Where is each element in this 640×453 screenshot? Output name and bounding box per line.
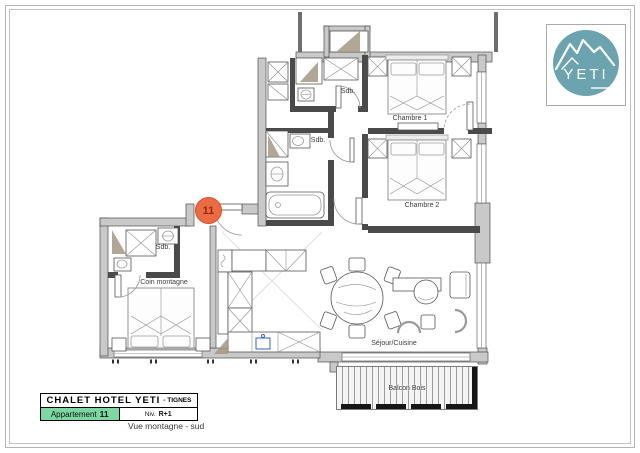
balcony-edge-segment xyxy=(341,404,371,409)
level-cell: Niv. R+1 xyxy=(120,408,198,420)
logo-tagline xyxy=(591,87,611,89)
apartment-entry-number: 11 xyxy=(203,205,215,217)
apartment-cell: Appartement 11 xyxy=(41,408,120,420)
room-label-balcon: Balcon Bois xyxy=(337,385,477,393)
apartment-entry-marker: 11 xyxy=(195,197,222,224)
view-caption: Vue montagne - sud xyxy=(128,421,204,431)
yeti-logo: YETI xyxy=(546,24,626,106)
apartment-number: 11 xyxy=(100,409,109,419)
floorplan-page: Balcon Bois Chambre 1 Chambre 2 Sdb. Sdb… xyxy=(0,0,640,453)
sill-ticks xyxy=(112,360,299,364)
bed-coin-montagne xyxy=(112,288,210,351)
level-value: R+1 xyxy=(159,411,172,418)
room-label-sejour-cuisine: Séjour/Cuisine xyxy=(356,340,432,348)
logo-text: YETI xyxy=(547,66,625,83)
room-label-sdb-left: Sdb. xyxy=(150,244,176,252)
balcony-edge-segment xyxy=(376,404,406,409)
hotel-location: - TIGNES xyxy=(163,397,191,404)
hotel-name: CHALET HOTEL YETI xyxy=(47,395,161,406)
level-word: Niv. xyxy=(145,411,156,418)
balcony-edge-segment xyxy=(411,404,441,409)
balcony: Balcon Bois xyxy=(336,366,478,410)
room-label-chambre-1: Chambre 1 xyxy=(384,115,436,123)
living-furniture xyxy=(320,258,470,338)
title-block-row: Appartement 11 Niv. R+1 xyxy=(41,408,197,420)
room-label-sdb-top: Sdb. xyxy=(335,88,361,96)
room-label-coin-montagne: Coin montagne xyxy=(131,279,197,287)
title-block: CHALET HOTEL YETI - TIGNES Appartement 1… xyxy=(40,393,198,421)
entry-closets xyxy=(268,62,288,100)
room-label-chambre-2: Chambre 2 xyxy=(394,202,450,210)
bed-chambre-2 xyxy=(386,135,448,200)
apartment-word: Appartement xyxy=(51,410,97,419)
floorplan-drawing xyxy=(0,0,640,453)
title-block-header: CHALET HOTEL YETI - TIGNES xyxy=(41,394,197,408)
chimney-niche xyxy=(330,31,368,52)
yeti-logo-graphic xyxy=(547,25,625,105)
room-label-sdb-mid: Sdb. xyxy=(305,137,331,145)
kitchen xyxy=(214,250,320,354)
